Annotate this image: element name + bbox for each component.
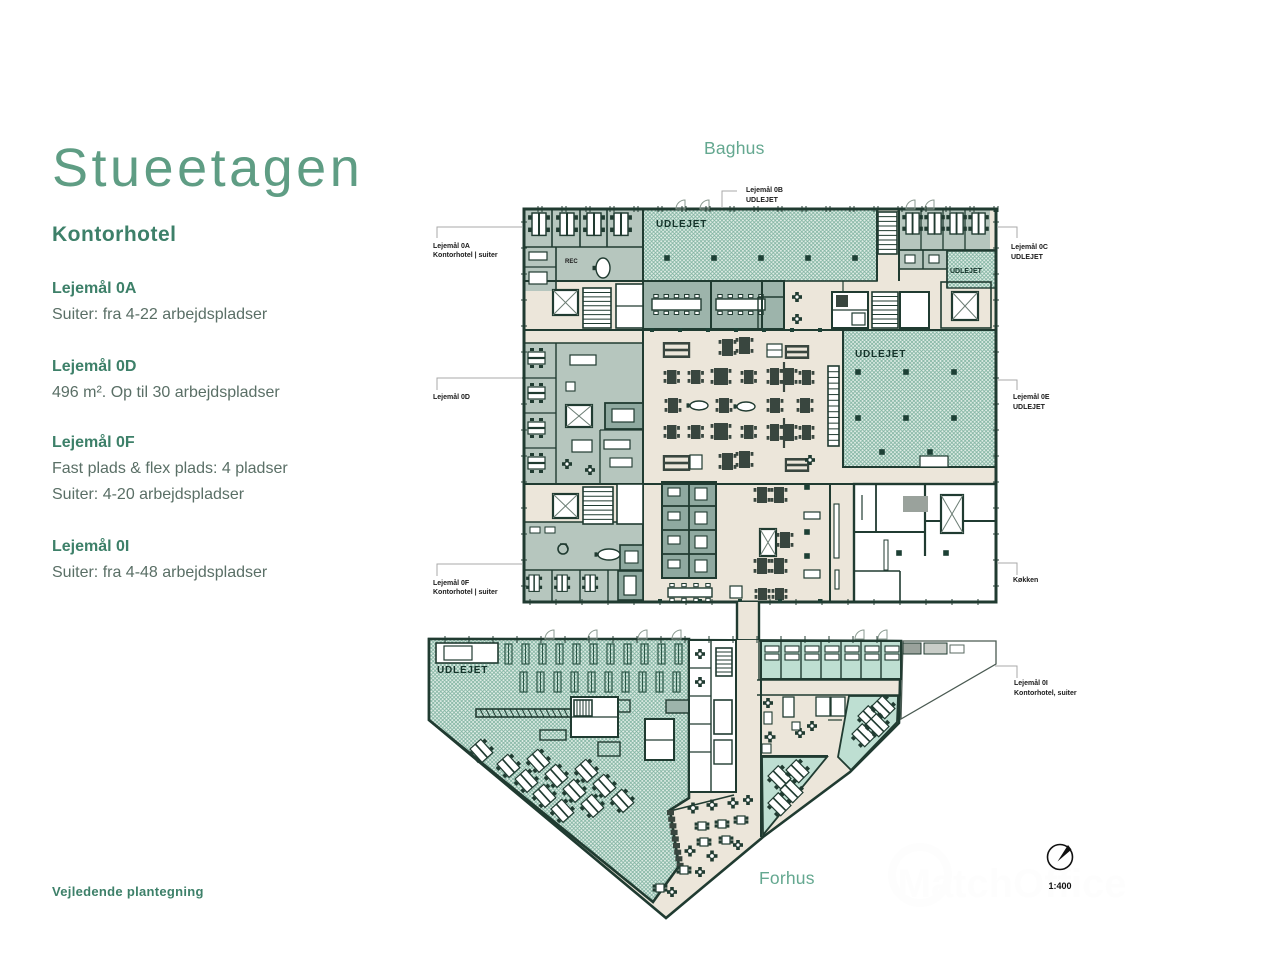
svg-text:Kontorhotel, suiter: Kontorhotel, suiter [1014,690,1077,697]
svg-text:Lejemål 0B: Lejemål 0B [746,186,783,194]
svg-text:UDLEJET: UDLEJET [855,349,906,360]
svg-text:UDLEJET: UDLEJET [746,197,779,204]
svg-text:Kontorhotel | suiter: Kontorhotel | suiter [433,589,498,596]
svg-text:UDLEJET: UDLEJET [1013,404,1046,411]
svg-text:1:400: 1:400 [1048,881,1071,891]
svg-text:Forhus: Forhus [759,868,815,888]
svg-text:Lejemål 0D: Lejemål 0D [433,393,470,401]
svg-text:Baghus: Baghus [704,138,765,158]
svg-text:UDLEJET: UDLEJET [950,268,983,275]
svg-text:Lejemål 0E: Lejemål 0E [1013,393,1050,401]
svg-text:Lejemål 0F: Lejemål 0F [433,579,470,587]
svg-text:REC: REC [565,259,578,265]
svg-text:Lejemål 0A: Lejemål 0A [433,242,470,250]
svg-text:Lejemål 0C: Lejemål 0C [1011,243,1048,251]
svg-text:Køkken: Køkken [1013,577,1038,584]
svg-text:UDLEJET: UDLEJET [437,665,488,676]
svg-text:UDLEJET: UDLEJET [656,219,707,230]
svg-text:Kontorhotel | suiter: Kontorhotel | suiter [433,252,498,259]
svg-text:UDLEJET: UDLEJET [1011,254,1044,261]
svg-text:Lejemål 0I: Lejemål 0I [1014,679,1048,687]
